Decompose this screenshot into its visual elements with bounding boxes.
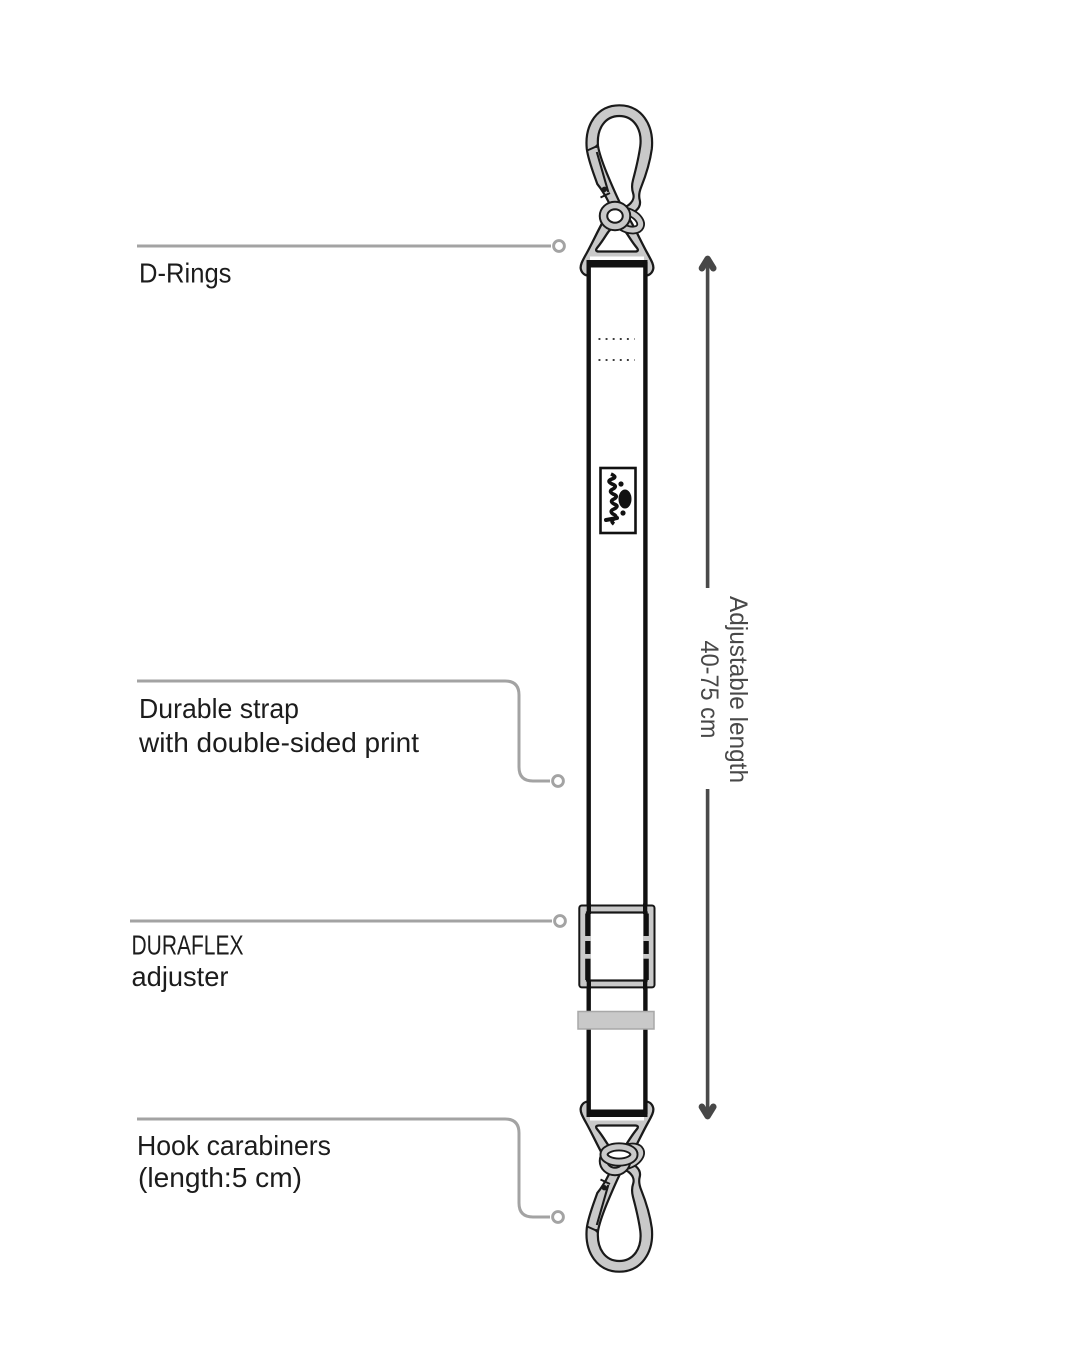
svg-text:Adjustable length: Adjustable length — [724, 596, 752, 783]
svg-text:Hook carabiners: Hook carabiners — [137, 1130, 331, 1161]
svg-text:with double-sided print: with double-sided print — [138, 727, 419, 758]
svg-text:Durable strap: Durable strap — [139, 693, 299, 724]
svg-text:40-75 cm: 40-75 cm — [695, 641, 723, 739]
svg-text:D-Rings: D-Rings — [139, 258, 232, 289]
svg-text:adjuster: adjuster — [132, 961, 229, 992]
svg-text:(length:5 cm): (length:5 cm) — [138, 1162, 302, 1193]
svg-text:DURAFLEX: DURAFLEX — [132, 930, 244, 961]
